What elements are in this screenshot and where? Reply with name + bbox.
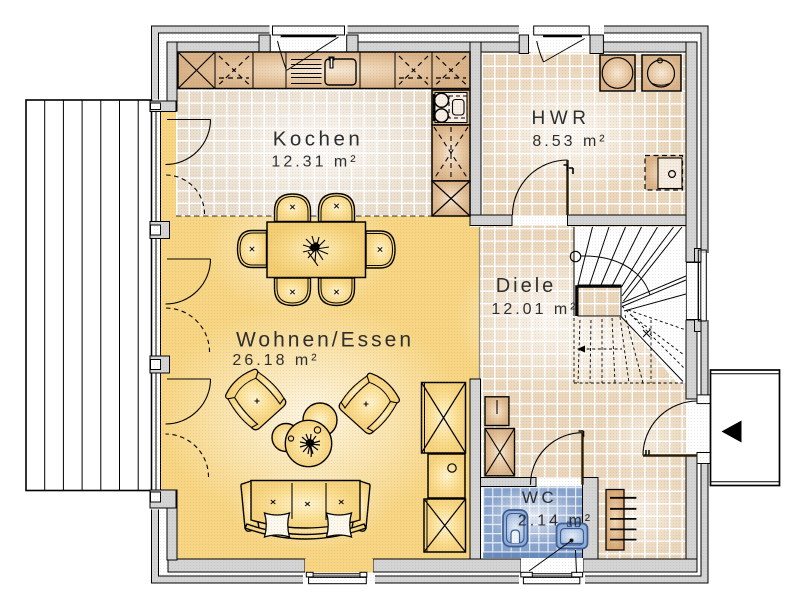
svg-text:WC: WC xyxy=(522,488,557,507)
svg-text:26.18 m²: 26.18 m² xyxy=(232,352,319,369)
svg-text:HWR: HWR xyxy=(532,108,591,129)
svg-text:2.14 m²: 2.14 m² xyxy=(518,513,593,530)
svg-text:8.53 m²: 8.53 m² xyxy=(532,133,607,150)
svg-text:Diele: Diele xyxy=(496,275,557,297)
svg-text:12.01 m²: 12.01 m² xyxy=(491,301,578,318)
svg-text:Wohnen/Essen: Wohnen/Essen xyxy=(236,329,414,352)
svg-text:Kochen: Kochen xyxy=(273,128,364,151)
svg-text:12.31 m²: 12.31 m² xyxy=(271,154,358,171)
